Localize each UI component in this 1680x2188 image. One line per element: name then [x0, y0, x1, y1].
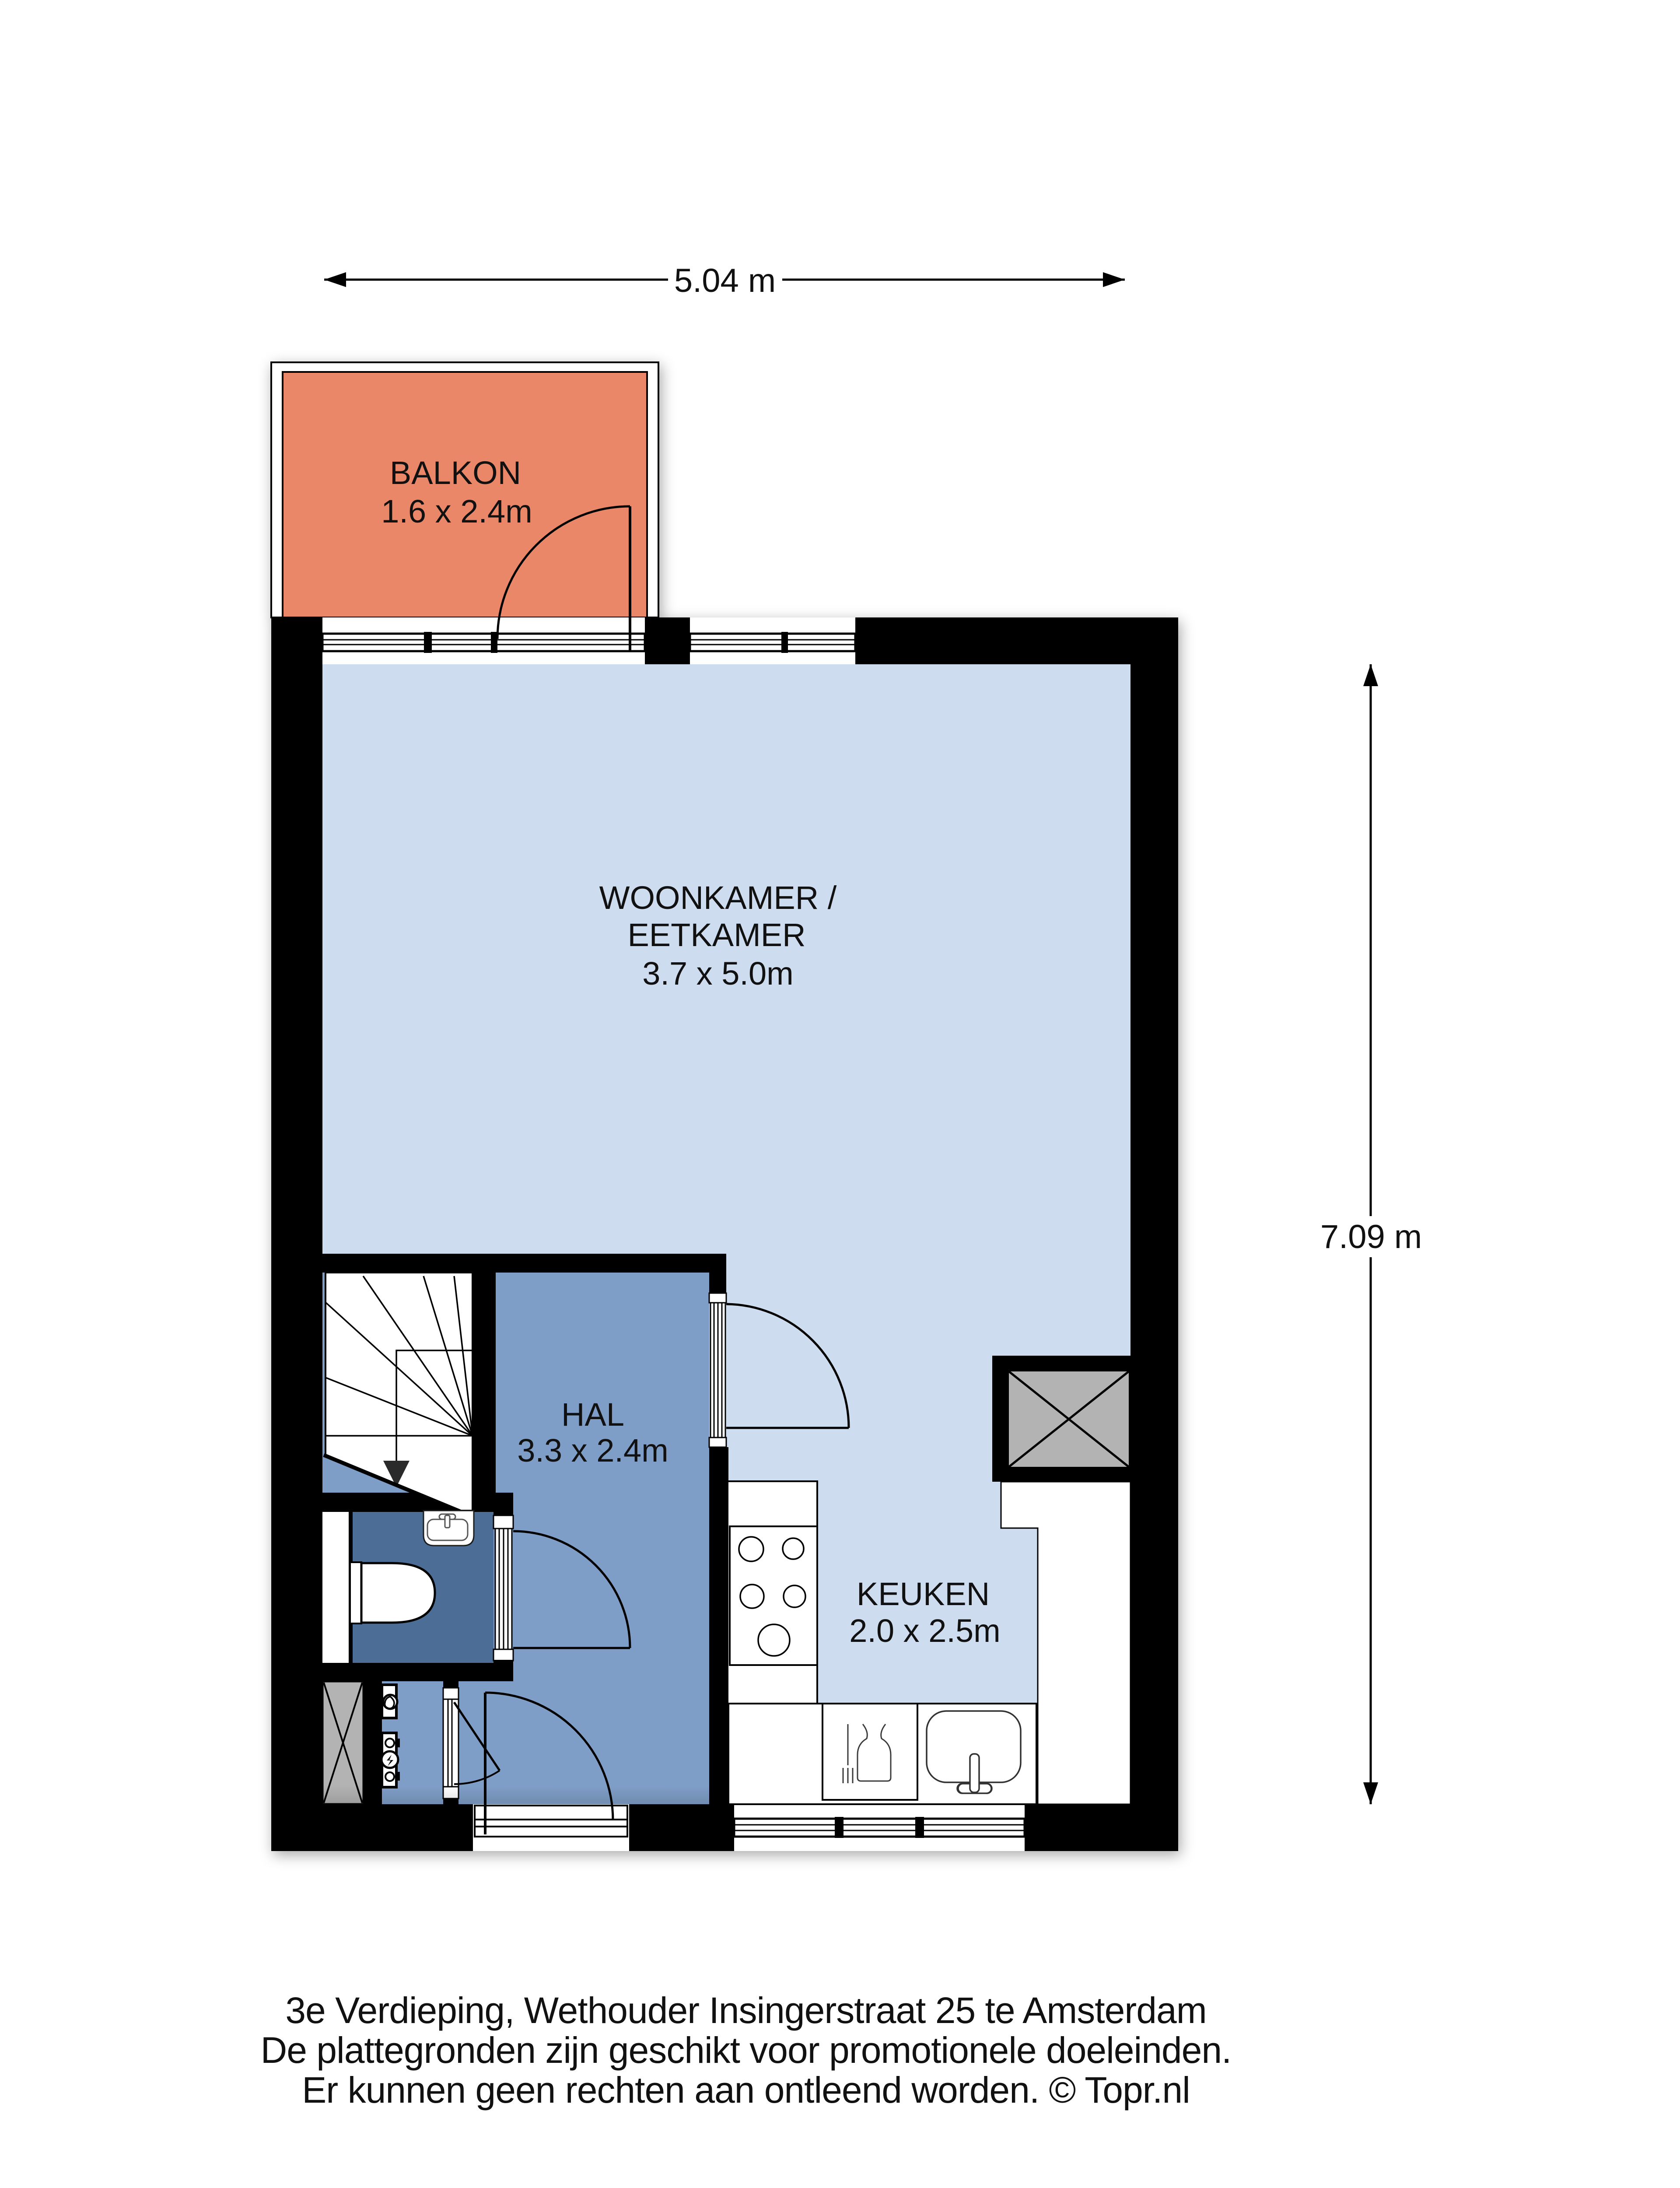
- svg-text:3.7 x 5.0m: 3.7 x 5.0m: [642, 955, 794, 992]
- svg-text:HAL: HAL: [561, 1396, 624, 1433]
- svg-text:EETKAMER: EETKAMER: [627, 917, 805, 953]
- svg-text:De plattegronden zijn geschikt: De plattegronden zijn geschikt voor prom…: [261, 2030, 1232, 2071]
- svg-text:2.0 x 2.5m: 2.0 x 2.5m: [849, 1613, 1001, 1649]
- svg-text:1.6 x 2.4m: 1.6 x 2.4m: [381, 493, 532, 529]
- svg-text:5.04 m: 5.04 m: [674, 262, 776, 299]
- svg-text:3e Verdieping, Wethouder Insin: 3e Verdieping, Wethouder Insingerstraat …: [285, 1990, 1206, 2031]
- svg-text:BALKON: BALKON: [390, 455, 521, 491]
- svg-text:WOONKAMER /: WOONKAMER /: [599, 880, 837, 916]
- svg-text:3.3 x 2.4m: 3.3 x 2.4m: [517, 1432, 668, 1469]
- svg-text:Er kunnen geen rechten aan ont: Er kunnen geen rechten aan ontleend word…: [302, 2069, 1190, 2111]
- svg-text:7.09 m: 7.09 m: [1320, 1218, 1422, 1255]
- svg-text:KEUKEN: KEUKEN: [857, 1576, 990, 1612]
